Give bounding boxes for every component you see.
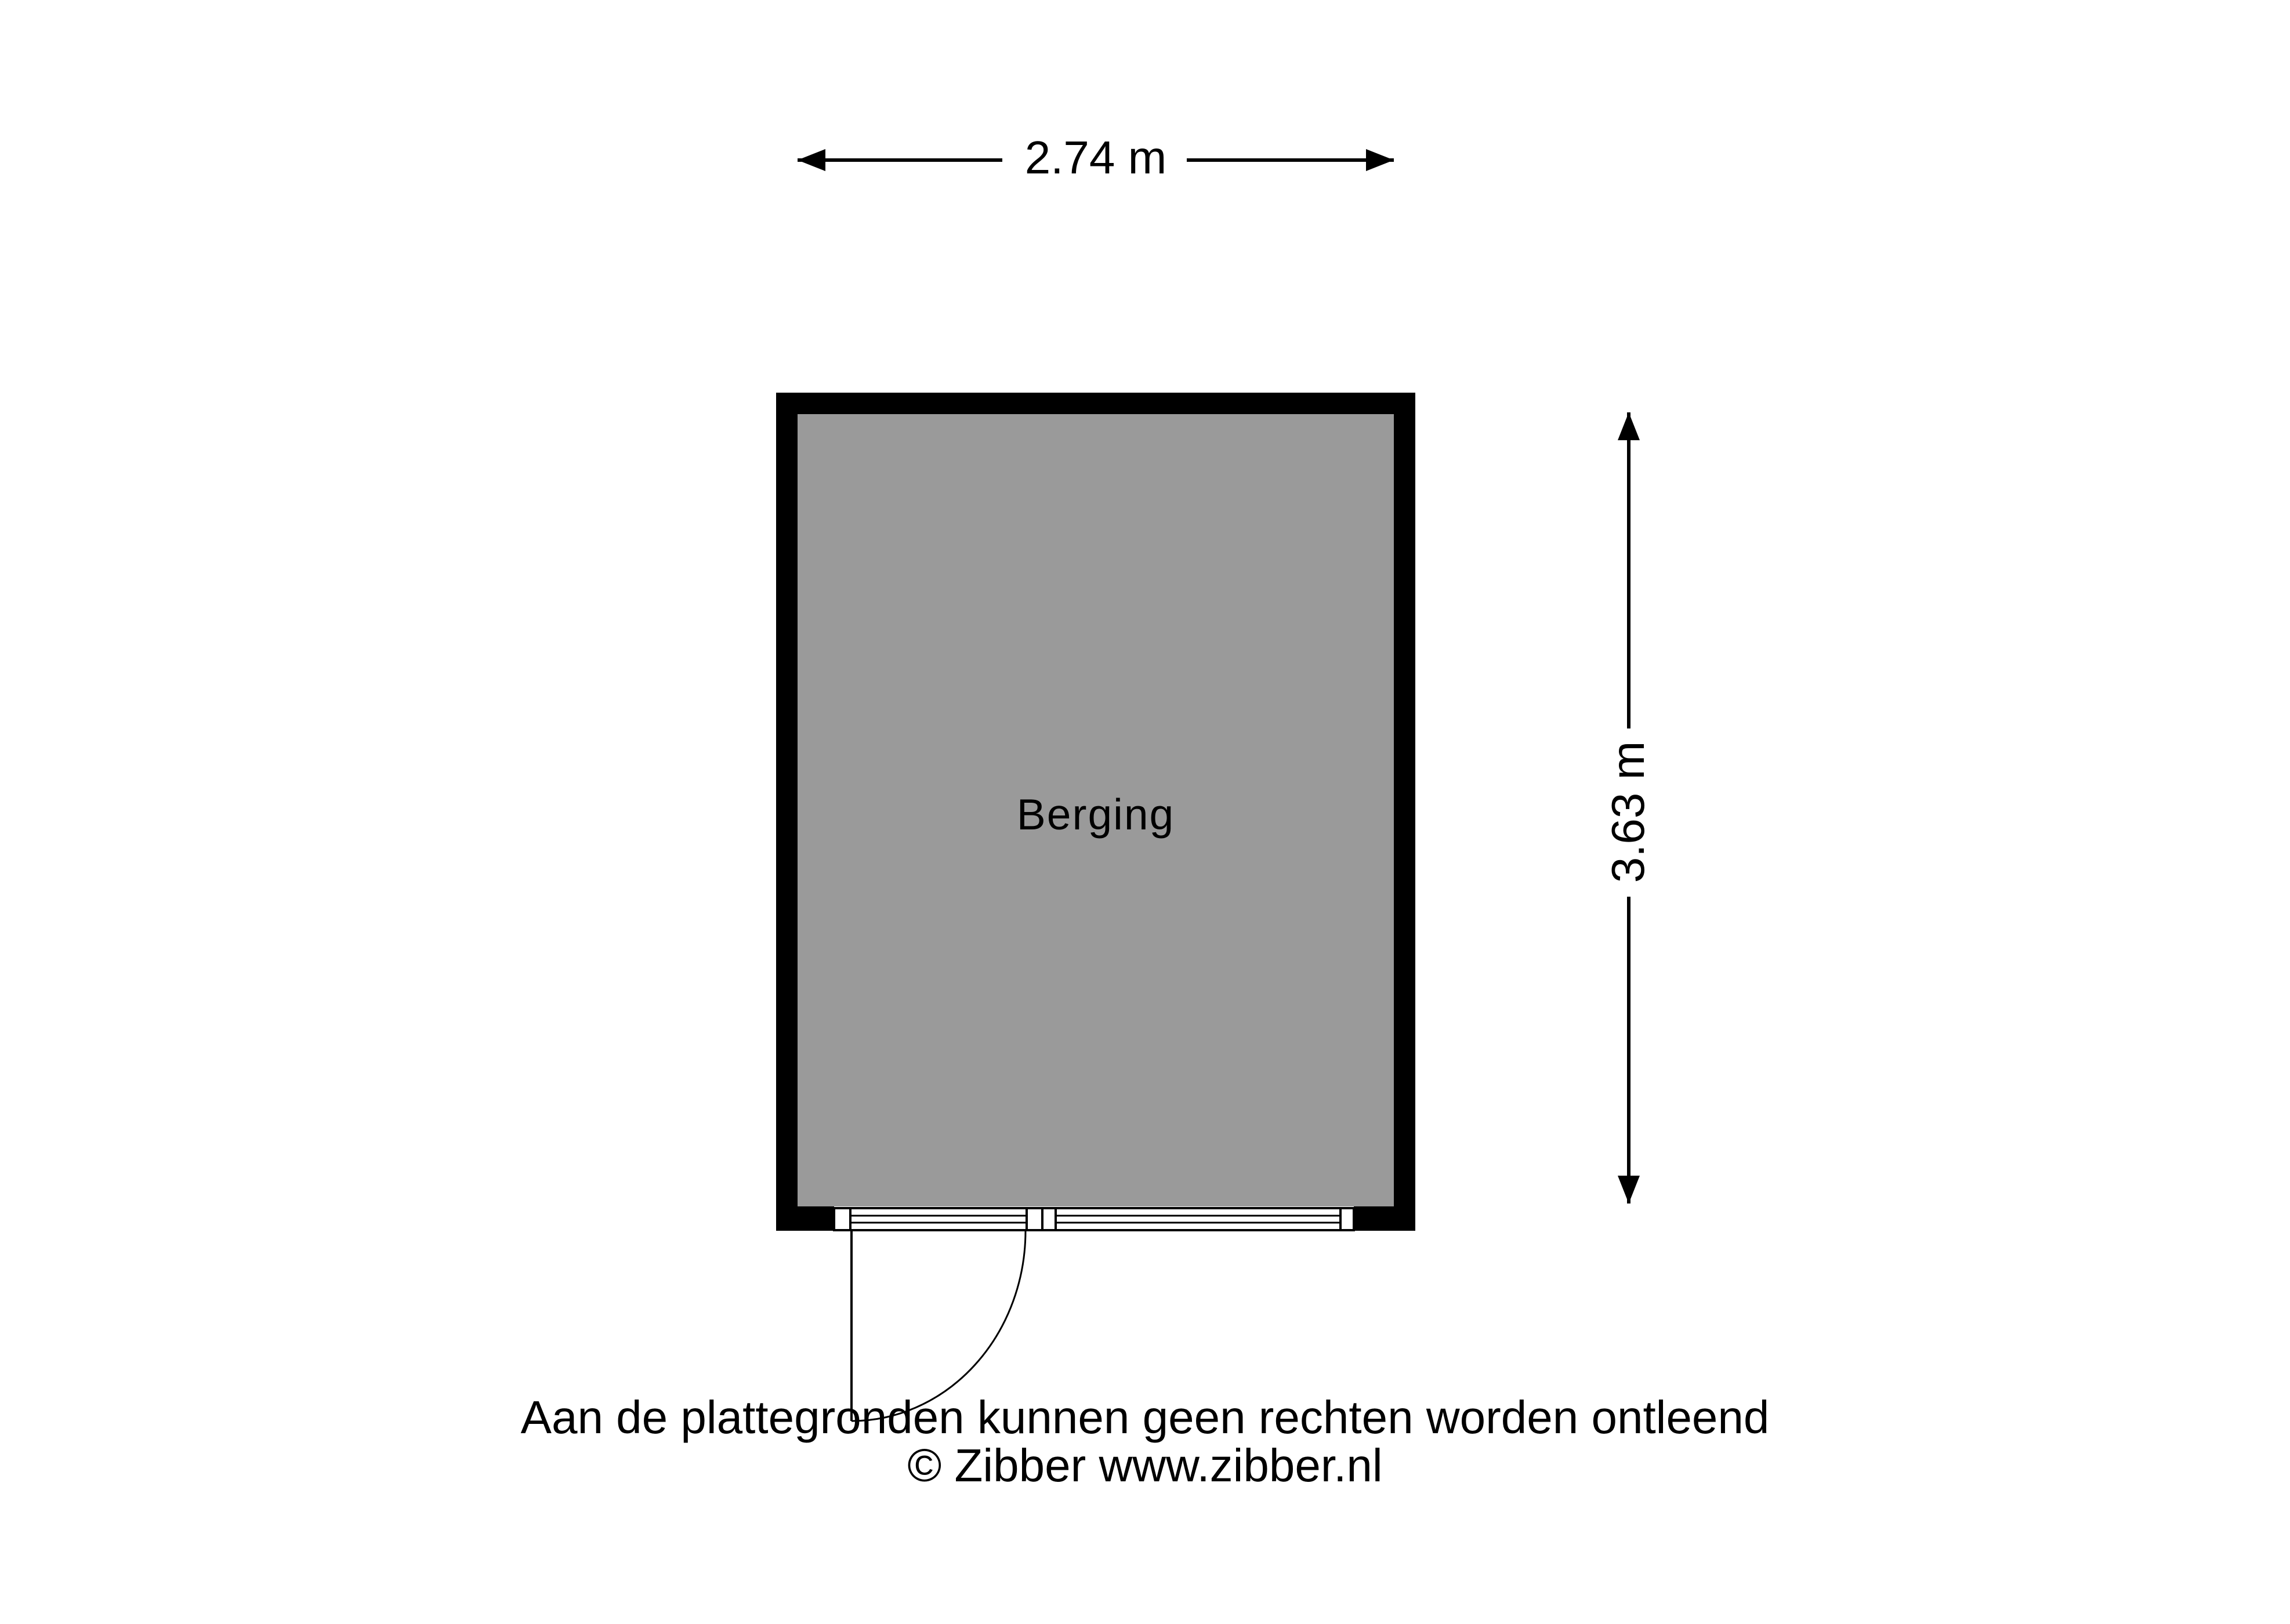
wall-top xyxy=(776,393,1415,414)
wall-corner-bottom-left xyxy=(798,1206,834,1231)
arrowhead-up-icon xyxy=(1618,412,1640,440)
copyright-text: © Zibber www.zibber.nl xyxy=(0,1440,2290,1491)
wall-corner-bottom-right xyxy=(1354,1206,1394,1231)
arrowhead-down-icon xyxy=(1618,1176,1640,1203)
wall-left xyxy=(776,393,798,1231)
floor-plan-canvas: 2.74 m 3.63 m Berging Aan de plattegrond… xyxy=(0,0,2290,1624)
door-post-center-b xyxy=(1042,1208,1056,1230)
door-jamb-left xyxy=(834,1208,850,1230)
wall-right xyxy=(1394,393,1415,1231)
room-label: Berging xyxy=(798,791,1394,838)
width-dimension-label: 2.74 m xyxy=(798,132,1394,183)
disclaimer-text: Aan de plattegronden kunnen geen rechten… xyxy=(0,1392,2290,1443)
window-band-right xyxy=(1056,1208,1340,1230)
window-band-left xyxy=(850,1208,1027,1230)
door-post-center-a xyxy=(1027,1208,1042,1230)
height-dimension-label: 3.63 m xyxy=(1603,667,1655,957)
door-jamb-right xyxy=(1340,1208,1354,1230)
